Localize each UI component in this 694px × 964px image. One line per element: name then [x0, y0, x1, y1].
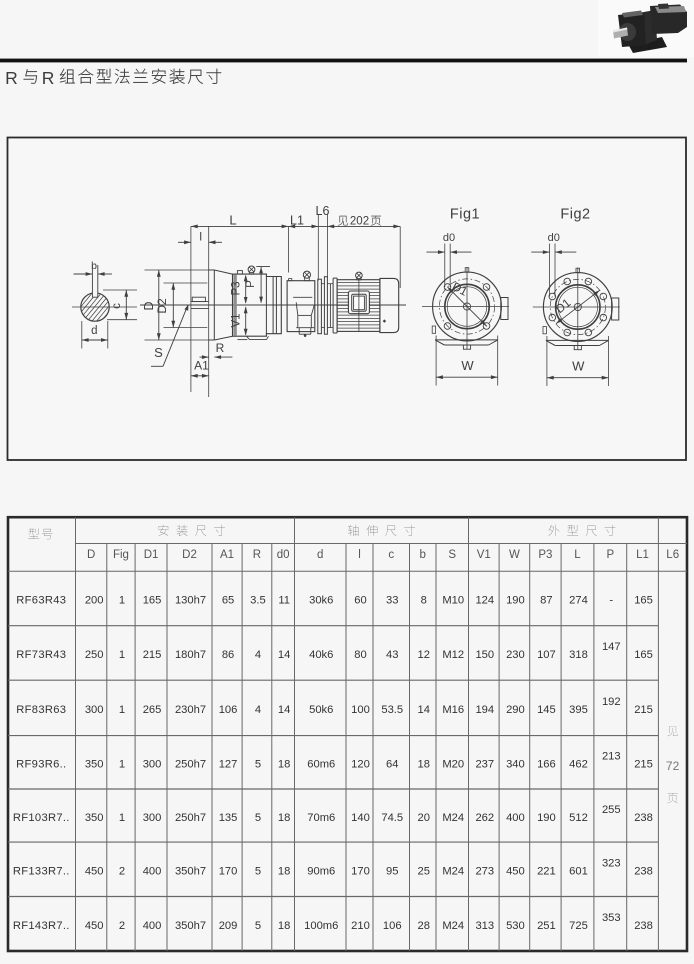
svg-text:274: 274	[569, 595, 588, 607]
svg-text:5: 5	[255, 920, 261, 932]
svg-text:130h7: 130h7	[175, 595, 206, 607]
svg-text:b: b	[91, 260, 97, 272]
svg-text:1: 1	[119, 759, 125, 771]
svg-text:512: 512	[569, 812, 588, 824]
svg-text:2: 2	[119, 920, 125, 932]
svg-text:RF93R6..: RF93R6..	[16, 759, 66, 771]
svg-text:450: 450	[506, 866, 525, 878]
svg-text:RF143R7..: RF143R7..	[13, 920, 70, 932]
svg-text:215: 215	[634, 704, 653, 716]
svg-text:1: 1	[119, 704, 125, 716]
svg-text:L6: L6	[666, 549, 679, 561]
svg-text:350: 350	[85, 812, 104, 824]
svg-text:M24: M24	[442, 812, 464, 824]
svg-text:43: 43	[386, 649, 398, 661]
svg-text:53.5: 53.5	[381, 704, 403, 716]
svg-text:450: 450	[85, 920, 104, 932]
svg-text:213: 213	[602, 751, 621, 763]
svg-text:350h7: 350h7	[175, 866, 206, 878]
svg-text:12: 12	[418, 649, 430, 661]
svg-text:8: 8	[421, 595, 427, 607]
svg-text:1: 1	[119, 812, 125, 824]
svg-text:4: 4	[255, 704, 261, 716]
svg-text:c: c	[111, 303, 123, 309]
svg-text:c: c	[388, 549, 394, 561]
svg-text:165: 165	[634, 595, 653, 607]
svg-text:L6: L6	[316, 204, 330, 218]
svg-text:M24: M24	[442, 866, 464, 878]
svg-text:R: R	[253, 549, 261, 561]
svg-text:250h7: 250h7	[175, 812, 206, 824]
svg-text:5: 5	[255, 812, 261, 824]
svg-text:Fig1: Fig1	[450, 207, 480, 223]
svg-text:4: 4	[255, 649, 261, 661]
svg-text:P: P	[606, 549, 614, 561]
svg-text:200: 200	[85, 595, 104, 607]
svg-text:124: 124	[475, 595, 494, 607]
svg-text:M10: M10	[442, 595, 464, 607]
svg-text:l: l	[199, 229, 202, 243]
svg-text:L1: L1	[636, 549, 649, 561]
svg-text:S: S	[448, 549, 456, 561]
svg-text:P3: P3	[538, 549, 552, 561]
svg-text:166: 166	[537, 759, 556, 771]
svg-text:190: 190	[537, 812, 556, 824]
svg-text:11: 11	[278, 595, 290, 607]
svg-text:5: 5	[255, 759, 261, 771]
svg-text:V1: V1	[477, 549, 491, 561]
svg-text:210: 210	[351, 920, 370, 932]
svg-text:251: 251	[537, 920, 556, 932]
svg-text:273: 273	[475, 866, 494, 878]
svg-text:d: d	[91, 325, 97, 337]
svg-text:95: 95	[386, 866, 398, 878]
svg-text:106: 106	[383, 920, 402, 932]
svg-text:d: d	[317, 549, 323, 561]
svg-text:192: 192	[602, 696, 621, 708]
svg-text:65: 65	[222, 595, 234, 607]
svg-text:RF133R7..: RF133R7..	[13, 866, 70, 878]
svg-text:230h7: 230h7	[175, 704, 206, 716]
svg-text:318: 318	[569, 649, 588, 661]
svg-text:20: 20	[418, 812, 430, 824]
svg-text:W: W	[509, 549, 520, 561]
svg-text:M20: M20	[442, 759, 464, 771]
svg-text:Fig: Fig	[113, 549, 129, 561]
svg-text:d0: d0	[443, 232, 455, 244]
svg-text:237: 237	[475, 759, 494, 771]
svg-text:M16: M16	[442, 704, 464, 716]
svg-text:M12: M12	[442, 649, 464, 661]
svg-text:250: 250	[85, 649, 104, 661]
svg-text:25: 25	[418, 866, 430, 878]
svg-text:W: W	[572, 359, 585, 374]
svg-text:170: 170	[351, 866, 370, 878]
svg-text:1: 1	[119, 649, 125, 661]
svg-text:350: 350	[85, 759, 104, 771]
svg-text:RF63R43: RF63R43	[16, 595, 66, 607]
svg-text:RF83R63: RF83R63	[16, 704, 66, 716]
svg-text:60m6: 60m6	[307, 759, 335, 771]
svg-text:28: 28	[418, 920, 430, 932]
svg-text:A1: A1	[194, 359, 209, 373]
svg-text:209: 209	[219, 920, 238, 932]
svg-text:145: 145	[537, 704, 556, 716]
svg-text:2: 2	[119, 866, 125, 878]
svg-text:150: 150	[475, 649, 494, 661]
svg-text:50k6: 50k6	[309, 704, 333, 716]
svg-text:V1: V1	[230, 313, 242, 327]
svg-text:353: 353	[602, 912, 621, 924]
svg-text:395: 395	[569, 704, 588, 716]
svg-text:194: 194	[475, 704, 494, 716]
svg-text:215: 215	[634, 759, 653, 771]
svg-text:265: 265	[143, 704, 162, 716]
svg-text:18: 18	[278, 866, 290, 878]
svg-text:120: 120	[351, 759, 370, 771]
svg-text:l: l	[358, 549, 361, 561]
svg-text:255: 255	[602, 804, 621, 816]
svg-text:230: 230	[506, 649, 525, 661]
svg-text:R: R	[42, 68, 55, 88]
svg-text:262: 262	[475, 812, 494, 824]
svg-text:601: 601	[569, 866, 588, 878]
svg-text:S: S	[154, 345, 163, 360]
svg-text:P3: P3	[230, 281, 242, 295]
svg-text:18: 18	[278, 920, 290, 932]
svg-text:350h7: 350h7	[175, 920, 206, 932]
svg-text:400: 400	[506, 812, 525, 824]
svg-text:18: 18	[278, 759, 290, 771]
svg-text:14: 14	[278, 649, 290, 661]
svg-text:313: 313	[475, 920, 494, 932]
svg-text:L: L	[574, 549, 581, 561]
svg-text:14: 14	[418, 704, 430, 716]
svg-text:300: 300	[143, 812, 162, 824]
svg-text:D: D	[87, 549, 95, 561]
svg-text:725: 725	[569, 920, 588, 932]
svg-text:-: -	[609, 595, 613, 607]
svg-text:M24: M24	[442, 920, 464, 932]
svg-text:87: 87	[540, 595, 552, 607]
svg-text:5: 5	[255, 866, 261, 878]
svg-text:106: 106	[219, 704, 238, 716]
svg-text:80: 80	[354, 649, 366, 661]
svg-text:33: 33	[386, 595, 398, 607]
svg-text:400: 400	[143, 866, 162, 878]
svg-text:P: P	[245, 280, 257, 288]
svg-text:90m6: 90m6	[307, 866, 335, 878]
svg-text:127: 127	[219, 759, 238, 771]
svg-text:R: R	[216, 341, 225, 355]
svg-text:165: 165	[143, 595, 162, 607]
svg-text:290: 290	[506, 704, 525, 716]
svg-text:180h7: 180h7	[175, 649, 206, 661]
svg-text:202: 202	[350, 216, 369, 228]
svg-text:RF73R43: RF73R43	[16, 649, 66, 661]
svg-text:238: 238	[634, 920, 653, 932]
svg-text:450: 450	[85, 866, 104, 878]
svg-text:238: 238	[634, 812, 653, 824]
svg-text:d0: d0	[548, 232, 560, 244]
svg-text:64: 64	[386, 759, 398, 771]
svg-text:18: 18	[418, 759, 430, 771]
svg-text:340: 340	[506, 759, 525, 771]
svg-text:30k6: 30k6	[309, 595, 333, 607]
svg-text:238: 238	[634, 866, 653, 878]
svg-text:86: 86	[222, 649, 234, 661]
svg-text:D2: D2	[155, 298, 169, 314]
svg-text:3.5: 3.5	[250, 595, 266, 607]
svg-text:70m6: 70m6	[307, 812, 335, 824]
svg-text:323: 323	[602, 858, 621, 870]
svg-text:14: 14	[278, 704, 290, 716]
svg-text:147: 147	[602, 641, 621, 653]
svg-text:300: 300	[143, 759, 162, 771]
svg-text:530: 530	[506, 920, 525, 932]
svg-text:215: 215	[143, 649, 162, 661]
svg-text:400: 400	[143, 920, 162, 932]
svg-text:W: W	[461, 358, 474, 373]
svg-text:221: 221	[537, 866, 556, 878]
svg-text:60: 60	[354, 595, 366, 607]
svg-text:D2: D2	[182, 549, 197, 561]
svg-text:Fig2: Fig2	[560, 207, 590, 223]
svg-text:72: 72	[666, 759, 680, 773]
svg-text:140: 140	[351, 812, 370, 824]
svg-text:100: 100	[351, 704, 370, 716]
svg-text:A1: A1	[220, 549, 234, 561]
svg-text:L: L	[229, 212, 236, 227]
svg-text:18: 18	[278, 812, 290, 824]
svg-text:RF103R7..: RF103R7..	[13, 812, 70, 824]
svg-text:100m6: 100m6	[304, 920, 338, 932]
svg-text:170: 170	[219, 866, 238, 878]
svg-text:107: 107	[537, 649, 556, 661]
svg-text:190: 190	[506, 595, 525, 607]
svg-text:462: 462	[569, 759, 588, 771]
svg-text:250h7: 250h7	[175, 759, 206, 771]
svg-text:d0: d0	[277, 549, 290, 561]
svg-text:D1: D1	[144, 549, 159, 561]
svg-text:40k6: 40k6	[309, 649, 333, 661]
svg-text:R: R	[5, 68, 18, 88]
svg-text:L1: L1	[290, 213, 304, 227]
svg-text:135: 135	[219, 812, 238, 824]
svg-text:74.5: 74.5	[381, 812, 403, 824]
svg-text:165: 165	[634, 649, 653, 661]
svg-text:b: b	[420, 549, 426, 561]
svg-text:1: 1	[119, 595, 125, 607]
svg-text:300: 300	[85, 704, 104, 716]
